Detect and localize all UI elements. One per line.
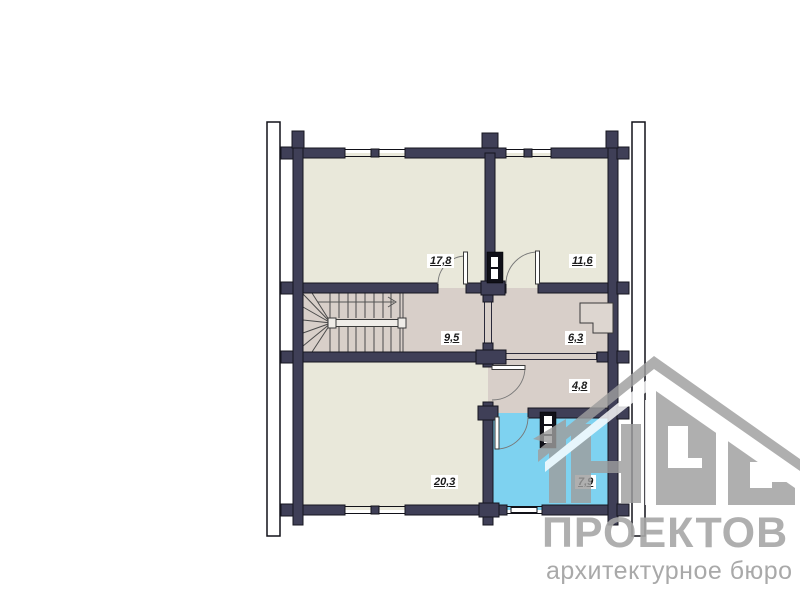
- wall-left: [293, 133, 303, 525]
- wall-top-3: [551, 148, 617, 158]
- logo-subtitle: архитектурное бюро: [546, 557, 800, 586]
- logo-title: ПРОЕКТОВ: [542, 509, 800, 558]
- floor-room-bottom-left: [298, 362, 488, 510]
- room-area-label: 11,6: [569, 254, 596, 268]
- stair-newel-right: [398, 318, 406, 328]
- floor-top-rooms: [298, 153, 612, 293]
- floor-plan-canvas: 17,8 11,6 9,5 6,3 4,8 20,3 7,9: [0, 0, 800, 600]
- room-area-label: 17,8: [427, 254, 454, 268]
- wall-mid2-1: [293, 352, 502, 362]
- wall-mid1-1: [293, 283, 438, 293]
- opening-hall-wardrobe: [485, 301, 492, 345]
- stair-newel-left: [328, 318, 336, 328]
- logo-house-icon: [520, 350, 800, 510]
- roof-edge-left: [267, 122, 280, 536]
- wall-mid1-3: [538, 283, 617, 293]
- stair-rail: [331, 320, 403, 327]
- room-area-label: 6,3: [565, 331, 586, 345]
- room-area-label: 9,5: [441, 331, 462, 345]
- chimney-flue: [487, 252, 503, 283]
- room-area-label: 20,3: [431, 475, 458, 489]
